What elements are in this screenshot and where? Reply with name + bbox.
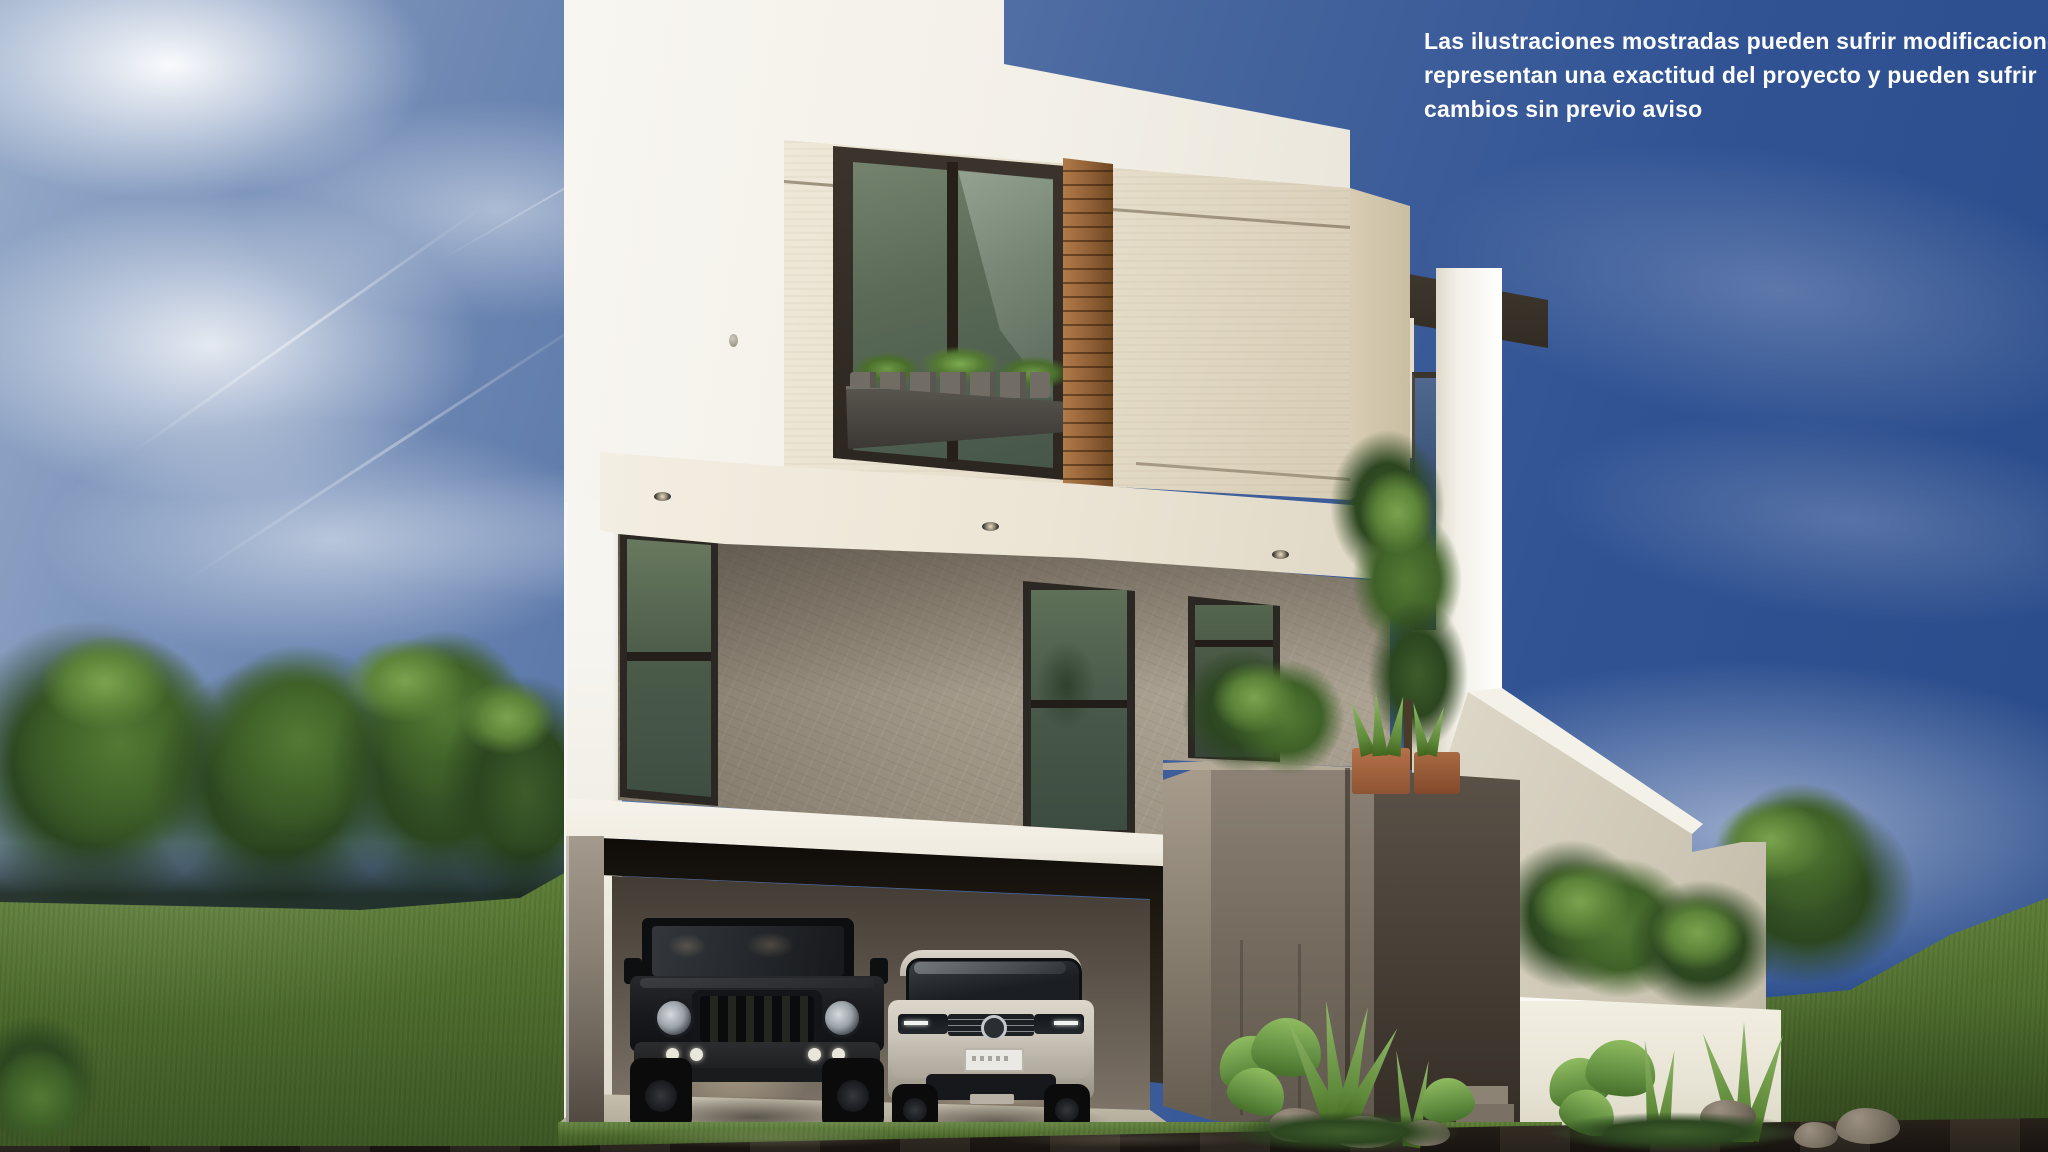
wood-slat-panel [1063,156,1113,522]
wet-reflection [1000,1130,1260,1148]
window-center-leaf-reflection [1036,640,1096,730]
window-left-rail [627,652,711,661]
window-right-rail [1195,640,1273,647]
tall-tree-highlight [1360,470,1435,555]
black-suv-foglight [690,1048,703,1061]
black-suv-interior-hint [668,934,706,958]
entry-volume-side [1163,763,1211,1120]
tree-canopy-highlight [345,638,465,723]
black-suv-rim [645,1080,677,1112]
window-left-glass [627,539,711,797]
rock [1794,1122,1838,1148]
white-suv [888,950,1094,1132]
black-suv-hood-highlight [640,978,874,988]
recessed-light [982,522,999,531]
black-suv [628,918,886,1130]
white-suv-windshield-reflection [914,962,1066,974]
black-suv-rim [837,1080,869,1112]
white-suv-drl [904,1021,928,1025]
white-suv-drl [1054,1021,1078,1025]
shrub-highlight [1530,862,1630,942]
disclaimer-text: Las ilustraciones mostradas pueden sufri… [1424,24,2048,126]
black-suv-interior-hint [746,932,794,958]
black-suv-grille-slats [700,996,814,1042]
black-suv-skid [674,1068,840,1082]
white-suv-rim [1055,1098,1079,1122]
window-center-rail [1031,700,1127,708]
architectural-render-scene: Las ilustraciones mostradas pueden sufri… [0,0,2048,1152]
black-suv-headlight [654,998,694,1038]
wet-reflection [620,1128,920,1148]
license-plate-marks [972,1056,1012,1061]
recessed-light [1272,550,1289,559]
left-pier [566,836,604,1128]
tree-canopy-highlight [460,680,555,755]
shrub-highlight [1650,895,1745,970]
white-suv-skid [970,1094,1014,1104]
white-suv-rim [903,1098,927,1122]
black-suv-headlight [822,998,862,1038]
terracotta-planter [1414,752,1460,794]
black-suv-foglight [808,1048,821,1061]
rooftop-shrub-highlight [1212,662,1297,734]
recessed-light [654,492,671,501]
bed-base [1222,1112,1462,1152]
bed-base [1550,1112,1800,1152]
wall-lamp [729,334,738,347]
rock [1836,1108,1900,1144]
tree-canopy-highlight [40,635,170,730]
